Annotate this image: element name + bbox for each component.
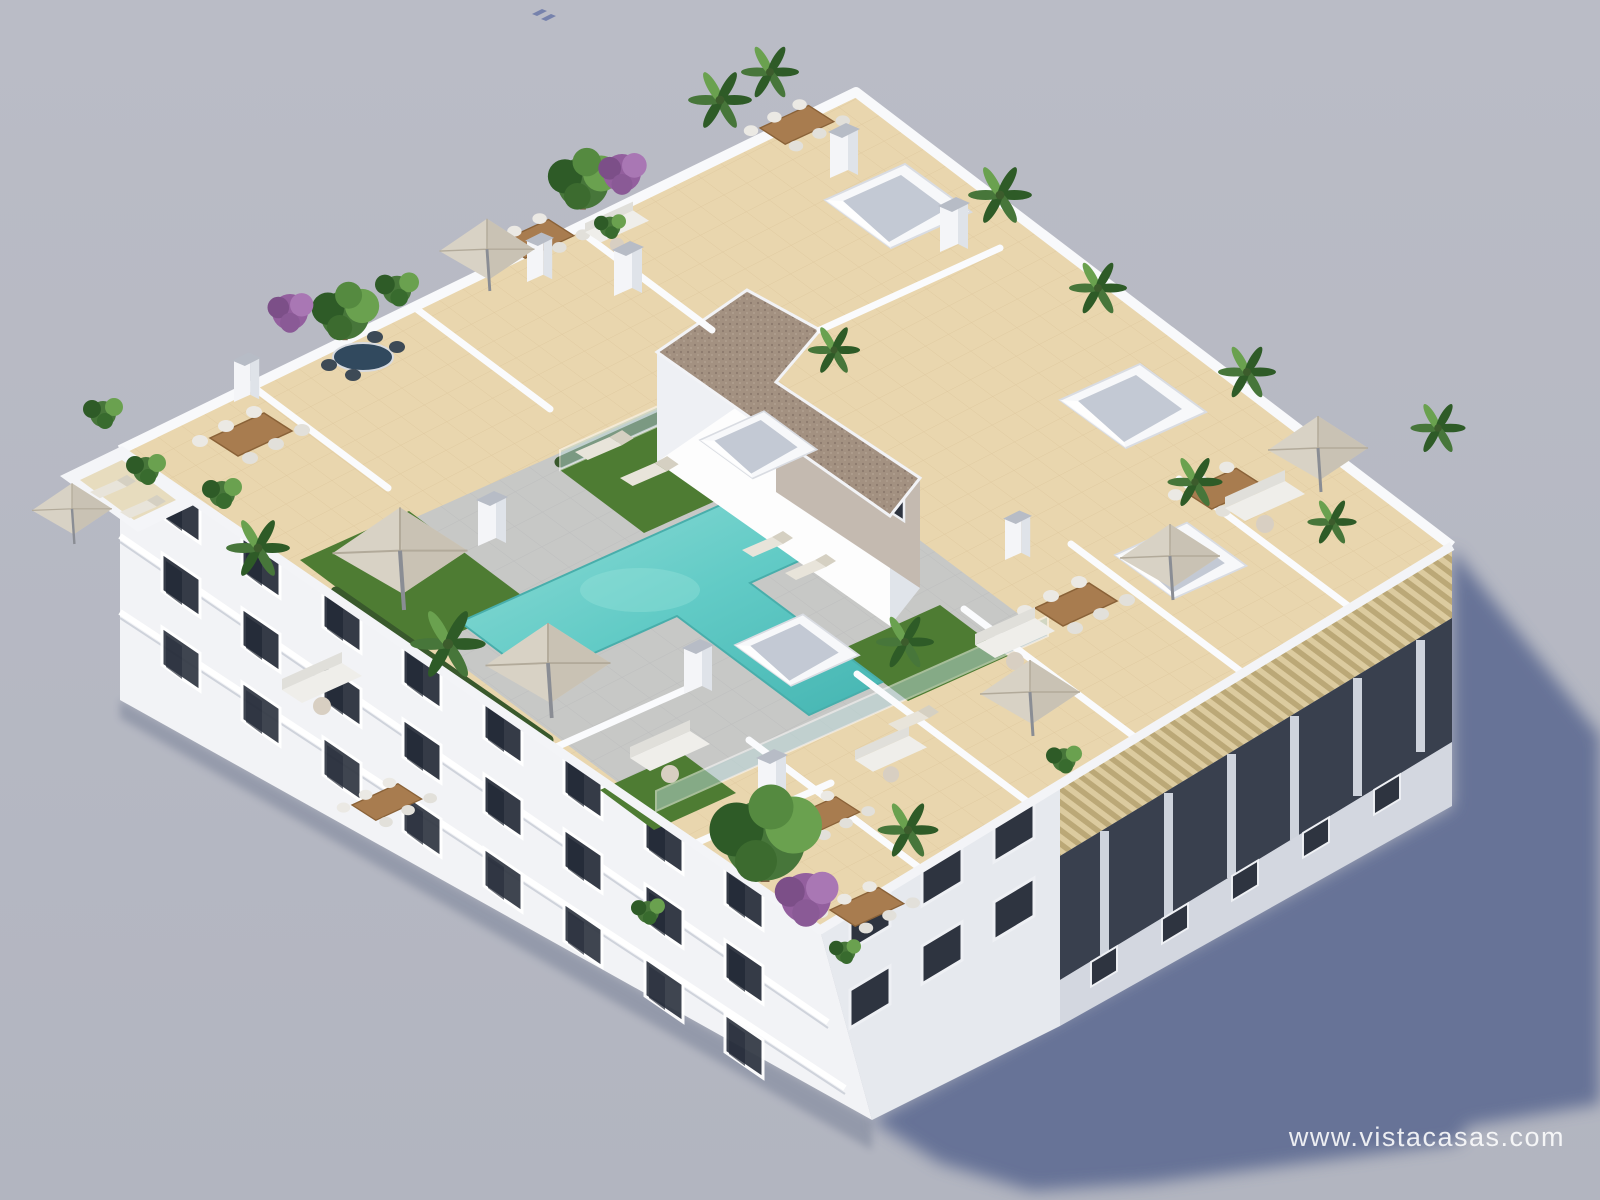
pool-highlight	[580, 568, 700, 612]
property-render: www.vistacasas.com	[0, 0, 1600, 1200]
watermark: www.vistacasas.com	[1288, 1122, 1565, 1152]
